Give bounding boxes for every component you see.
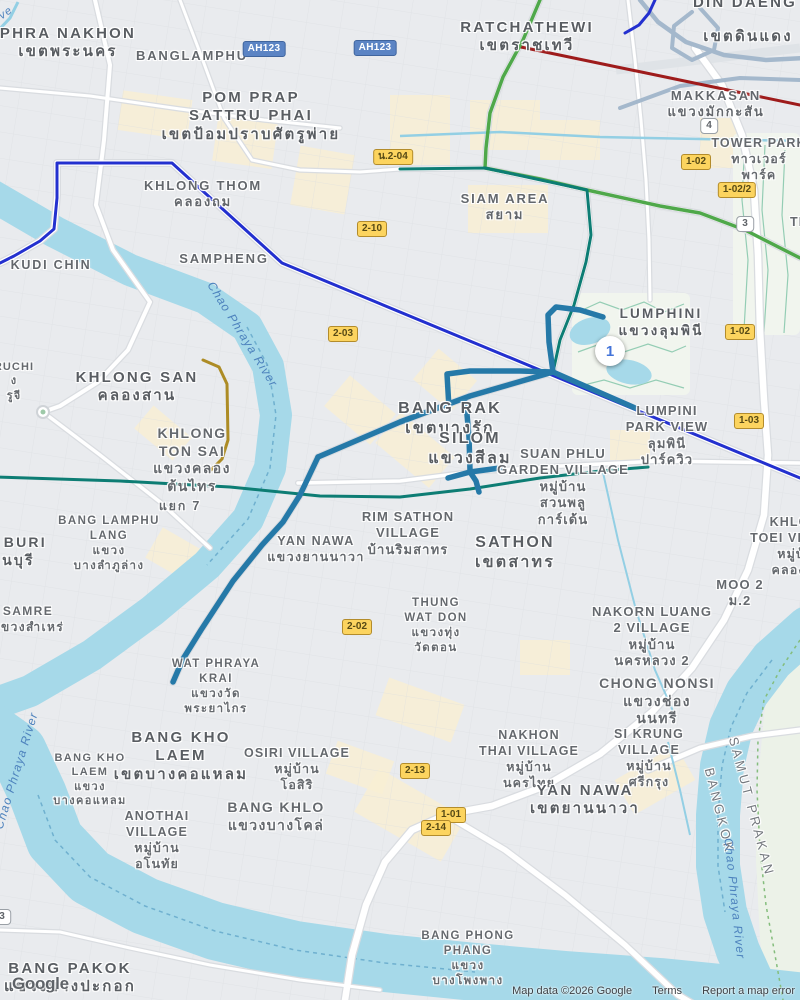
google-logo[interactable]: Google [12, 974, 69, 994]
map-canvas[interactable] [0, 0, 800, 1000]
report-map-error-link[interactable]: Report a map error [702, 985, 795, 997]
terms-link[interactable]: Terms [652, 985, 682, 997]
map-attribution-bar: Map data ©2026 Google Terms Report a map… [512, 985, 795, 997]
map-page: { "map": { "attribution": { "copyright":… [0, 0, 800, 1000]
roundabout-center [41, 410, 46, 415]
park-area [733, 133, 800, 335]
map-marker-1[interactable]: 1 [595, 336, 625, 366]
map-data-copyright: Map data ©2026 Google [512, 985, 632, 997]
